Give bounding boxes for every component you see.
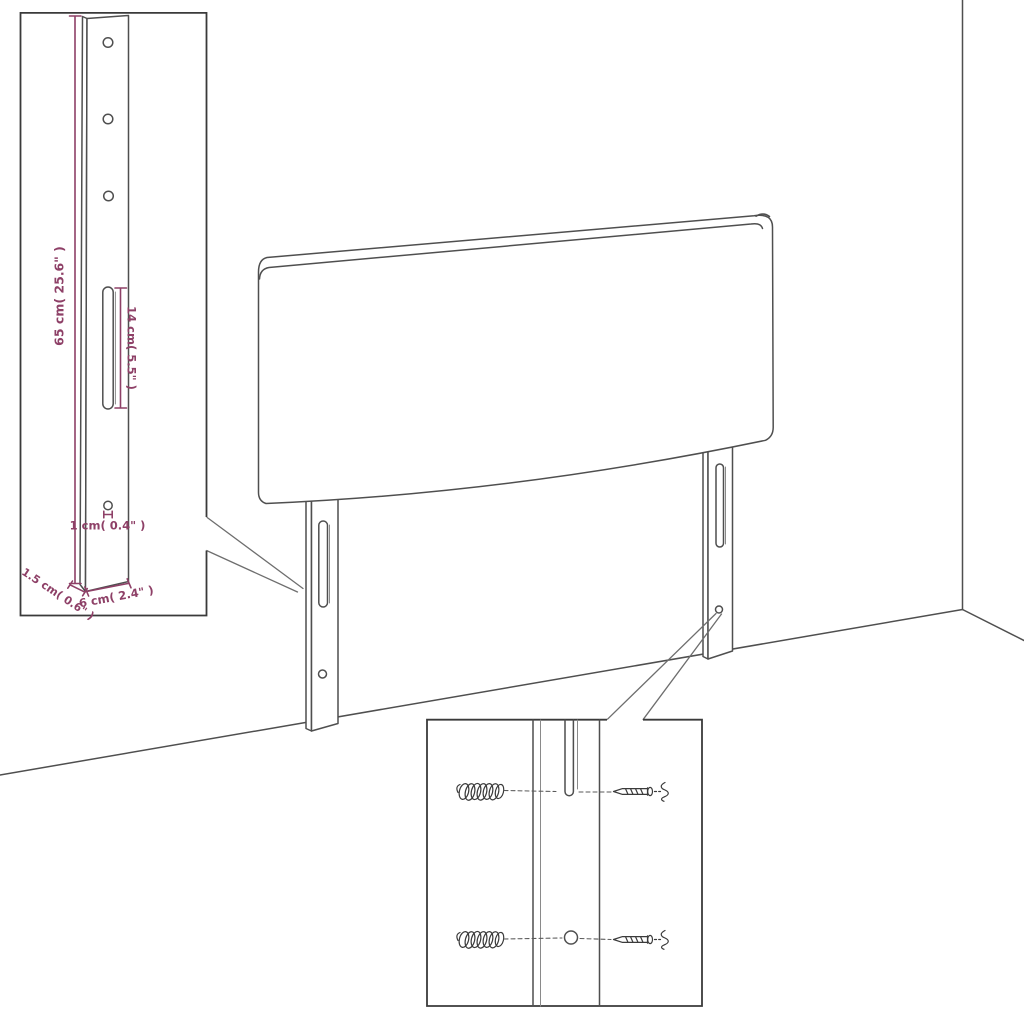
diagram-canvas: 65 cm( 25.6" ) 14 cm( 5.5" ) 1 cm( 0.4" … [0,0,1024,1024]
left-leg-side-face [306,470,312,731]
right-leg-slot [716,464,724,547]
left-leg-slot [319,521,328,607]
headboard-dimension-diagram: 65 cm( 25.6" ) 14 cm( 5.5" ) 1 cm( 0.4" … [0,0,1024,1024]
headboard-panel [259,214,774,503]
hole-diameter-label: 1 cm( 0.4" ) [70,519,146,533]
right-leg-hole [716,606,723,613]
callout-line-upper [207,517,304,589]
leg-detail-callout-wedge [207,517,304,592]
leg-detail-callout-box: 65 cm( 25.6" ) 14 cm( 5.5" ) 1 cm( 0.4" … [19,13,206,623]
callout-line-left [607,614,716,720]
callout-line-right [643,614,722,720]
panel-outline [259,215,774,503]
slot-length-label: 14 cm( 5.5" ) [125,306,139,390]
mounting-detail-callout-box [427,720,702,1006]
callout-line-lower [207,551,298,593]
left-leg-hole [319,670,327,678]
floor-line-right [963,610,1024,642]
leg-height-label: 65 cm( 25.6" ) [52,246,67,346]
detail-leg-front-face [86,16,129,592]
